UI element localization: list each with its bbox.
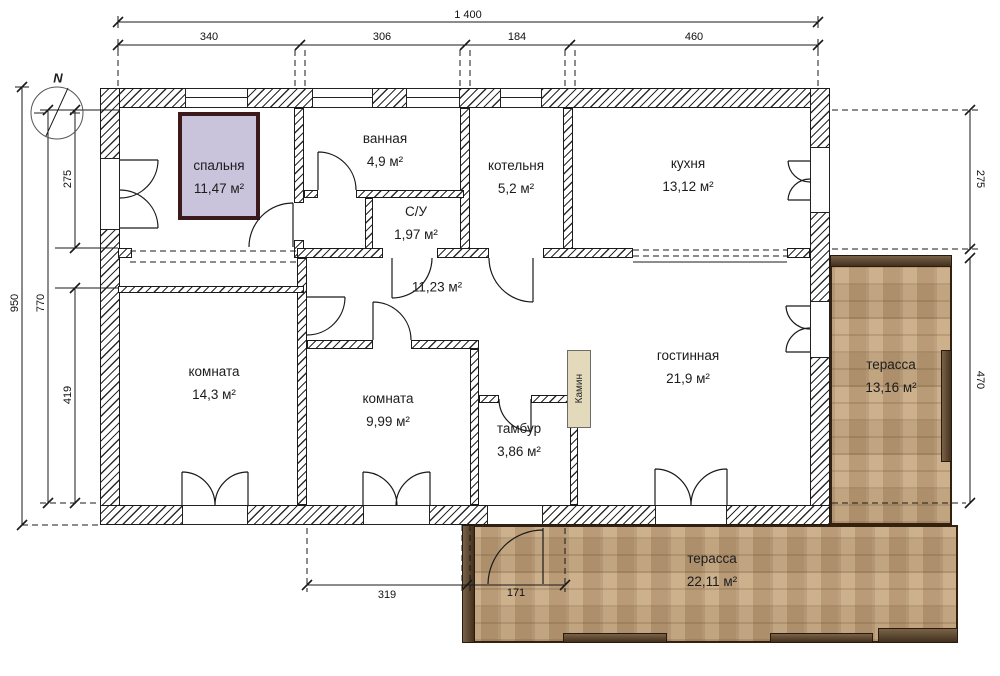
room-name: ванная: [363, 128, 407, 151]
dim-top-3: 184: [508, 31, 526, 43]
plan-linework: [0, 0, 1000, 676]
room-area: 22,11 м²: [687, 571, 737, 594]
dim-left-total: 950: [9, 294, 21, 312]
dimension-ticks: [17, 17, 975, 590]
room-area: 13,12 м²: [662, 176, 713, 199]
dim-top-4: 460: [685, 31, 703, 43]
dim-bottom-door: 171: [507, 587, 525, 599]
room-label-wc: С/У 1,97 м²: [394, 201, 438, 247]
room-area: 14,3 м²: [188, 384, 239, 407]
dimension-lines: [15, 16, 970, 585]
compass-icon: [31, 87, 83, 139]
dim-left-upper: 275: [62, 170, 74, 188]
construction-dashed-lines: [22, 50, 980, 592]
room-label-terrace-right: терасса 13,16 м²: [865, 354, 916, 400]
room-label-tambour: тамбур 3,86 м²: [497, 418, 541, 464]
room-label-room1: комната 14,3 м²: [188, 361, 239, 407]
room-name: спальня: [193, 155, 244, 178]
room-label-hall: 11,23 м²: [412, 277, 462, 300]
room-label-living: гостинная 21,9 м²: [657, 345, 719, 391]
dim-total-width: 1 400: [454, 9, 482, 21]
room-name: котельня: [488, 155, 544, 178]
room-name: комната: [362, 388, 413, 411]
room-name: кухня: [662, 153, 713, 176]
dim-right-upper: 275: [974, 170, 986, 188]
room-area: 13,16 м²: [865, 377, 916, 400]
dim-left-lower: 419: [62, 386, 74, 404]
room-label-terrace-bottom: терасса 22,11 м²: [687, 548, 737, 594]
room-label-bedroom: спальня 11,47 м²: [193, 155, 244, 201]
room-label-boiler: котельня 5,2 м²: [488, 155, 544, 201]
room-name: тамбур: [497, 418, 541, 441]
room-name: терасса: [865, 354, 916, 377]
room-area: 3,86 м²: [497, 441, 541, 464]
compass-north-label: N: [53, 71, 62, 86]
dim-top-1: 340: [200, 31, 218, 43]
dim-left-inner: 770: [35, 294, 47, 312]
room-label-room2: комната 9,99 м²: [362, 388, 413, 434]
dim-right-terrace: 470: [974, 371, 986, 389]
room-area: 1,97 м²: [394, 224, 438, 247]
room-name: комната: [188, 361, 239, 384]
room-area: 21,9 м²: [657, 368, 719, 391]
room-area: 5,2 м²: [488, 178, 544, 201]
room-name: С/У: [394, 201, 438, 224]
room-name: терасса: [687, 548, 737, 571]
room-area: 9,99 м²: [362, 411, 413, 434]
dim-top-2: 306: [373, 31, 391, 43]
room-area: 4,9 м²: [363, 151, 407, 174]
room-label-bathroom: ванная 4,9 м²: [363, 128, 407, 174]
floor-plan: Камин спальня 11,47 м² ванная 4,9 м² С/У…: [0, 0, 1000, 676]
room-label-kitchen: кухня 13,12 м²: [662, 153, 713, 199]
room-name: гостинная: [657, 345, 719, 368]
dim-bottom-room: 319: [378, 589, 396, 601]
room-area: 11,47 м²: [193, 178, 244, 201]
room-area: 11,23 м²: [412, 277, 462, 300]
